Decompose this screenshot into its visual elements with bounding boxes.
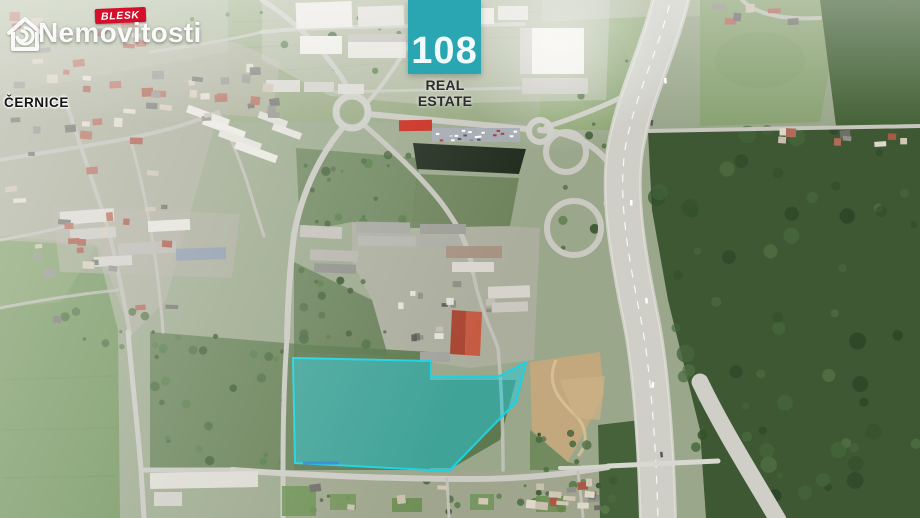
place-label: ČERNICE: [4, 95, 69, 110]
agency-logo-name: REAL ESTATE: [398, 77, 492, 109]
listing-photo: ČERNICE BLESK Nemovitosti 108 REAL ESTAT…: [0, 0, 920, 518]
car-park: [432, 128, 520, 142]
parcel-marker: [303, 462, 339, 465]
agency-logo-square: 108: [408, 0, 481, 74]
blesk-logo: BLESK Nemovitosti: [6, 4, 226, 54]
blesk-wordmark: Nemovitosti: [38, 17, 202, 49]
red-pitched-building: [450, 310, 466, 355]
red-roof-store: [399, 120, 432, 132]
agency-logo-number: 108: [408, 30, 481, 73]
